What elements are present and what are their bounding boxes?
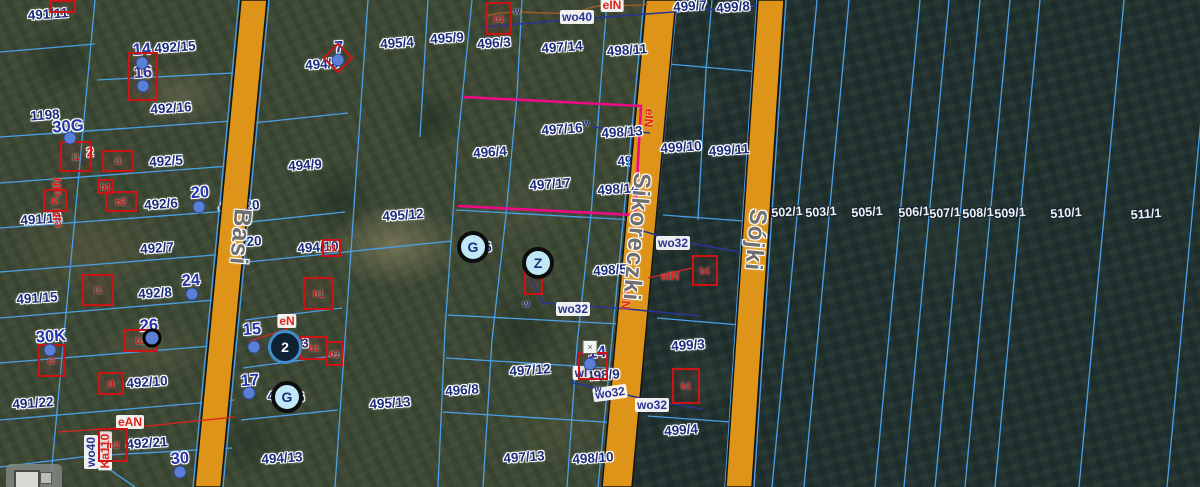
gas-poi-marker[interactable]: G [271, 381, 303, 413]
address-point-marker[interactable] [248, 341, 261, 354]
address-point-marker[interactable] [64, 132, 77, 145]
address-point-marker[interactable] [174, 466, 187, 479]
layer-fold-icon [40, 472, 52, 484]
z-poi-marker[interactable]: Z [522, 247, 554, 279]
address-point-marker[interactable] [186, 288, 199, 301]
gas-poi-marker[interactable]: G [457, 231, 489, 263]
address-point-marker[interactable] [584, 358, 597, 371]
layer-thumbnail-icon [14, 470, 40, 487]
cluster-marker[interactable]: 2 [268, 330, 302, 364]
ringed-point-marker[interactable] [143, 329, 162, 348]
map-canvas[interactable]: 494/20494/20498/17 491/11492/151198492/1… [0, 0, 1200, 487]
diamond-marker [322, 42, 353, 73]
markers-layer: GGZ2× [0, 0, 1200, 487]
address-point-marker[interactable] [137, 80, 150, 93]
map-control-icon[interactable] [6, 464, 62, 487]
symbol-box-marker: × [583, 340, 598, 354]
address-point-marker[interactable] [193, 201, 206, 214]
address-point-marker[interactable] [44, 344, 57, 357]
address-point-marker[interactable] [243, 387, 256, 400]
address-point-marker[interactable] [136, 57, 149, 70]
